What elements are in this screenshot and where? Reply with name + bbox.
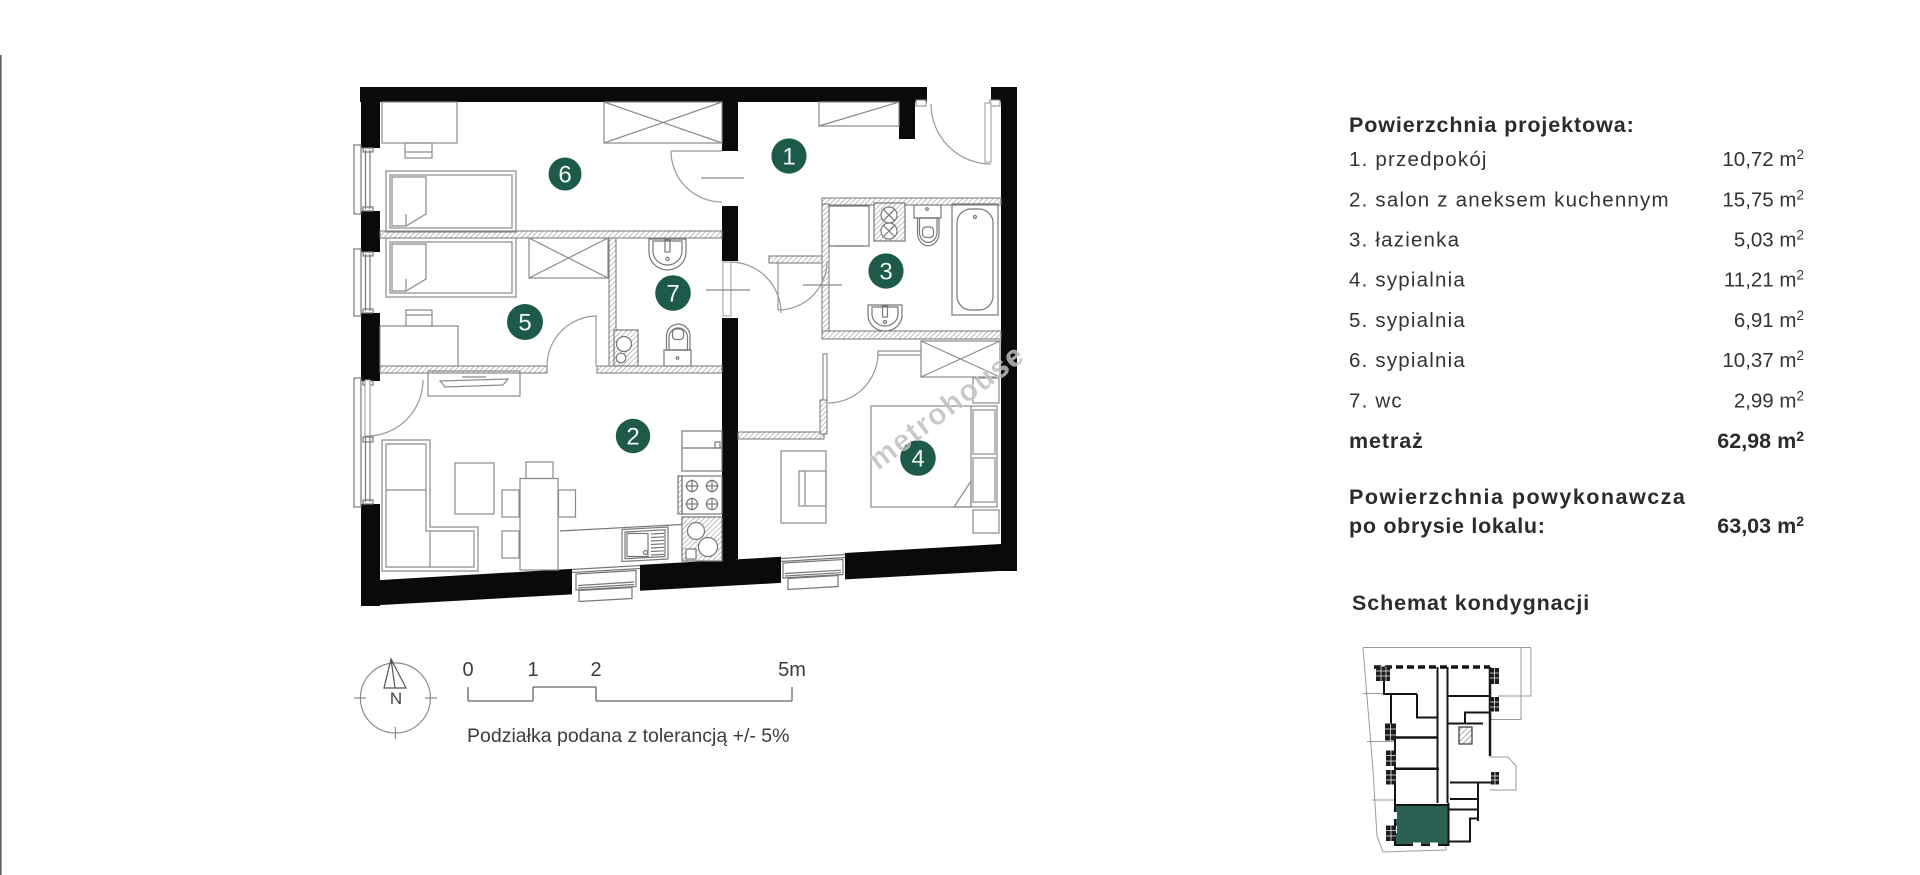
svg-text:15,75 m2: 15,75 m2 (1722, 188, 1804, 212)
svg-text:5: 5 (518, 310, 531, 337)
svg-text:10,37 m2: 10,37 m2 (1722, 348, 1804, 372)
svg-text:6,91 m2: 6,91 m2 (1734, 308, 1804, 332)
svg-text:N: N (390, 689, 402, 708)
svg-text:2. salon z aneksem kuchennym: 2. salon z aneksem kuchennym (1349, 189, 1670, 212)
svg-text:1. przedpokój: 1. przedpokój (1349, 148, 1488, 171)
svg-text:2: 2 (590, 659, 601, 681)
svg-text:11,21 m2: 11,21 m2 (1724, 268, 1804, 292)
svg-text:Schemat kondygnacji: Schemat kondygnacji (1352, 591, 1590, 615)
svg-text:po obrysie lokalu:: po obrysie lokalu: (1349, 514, 1546, 538)
svg-text:63,03 m2: 63,03 m2 (1717, 513, 1804, 538)
svg-text:3. łazienka: 3. łazienka (1349, 229, 1460, 252)
svg-text:5. sypialnia: 5. sypialnia (1349, 309, 1466, 332)
svg-text:3: 3 (879, 259, 892, 286)
svg-text:4. sypialnia: 4. sypialnia (1349, 269, 1466, 292)
svg-text:2,99 m2: 2,99 m2 (1734, 389, 1804, 413)
svg-text:0: 0 (462, 659, 473, 681)
svg-text:6: 6 (558, 162, 571, 189)
svg-text:5m: 5m (778, 659, 806, 681)
svg-text:Powierzchnia projektowa:: Powierzchnia projektowa: (1349, 113, 1635, 137)
svg-text:5,03 m2: 5,03 m2 (1734, 228, 1804, 252)
svg-text:1: 1 (782, 144, 795, 171)
svg-text:metraż: metraż (1349, 429, 1424, 453)
svg-text:1: 1 (527, 659, 538, 681)
svg-text:Powierzchnia powykonawcza: Powierzchnia powykonawcza (1349, 485, 1686, 509)
svg-text:62,98 m2: 62,98 m2 (1717, 428, 1804, 453)
svg-text:Podziałka podana z tolerancją: Podziałka podana z tolerancją +/- 5% (467, 725, 790, 747)
svg-text:10,72 m2: 10,72 m2 (1722, 147, 1804, 171)
svg-text:7: 7 (666, 281, 679, 308)
svg-text:2: 2 (626, 424, 639, 451)
svg-text:7. wc: 7. wc (1349, 390, 1403, 413)
svg-text:6. sypialnia: 6. sypialnia (1349, 349, 1466, 372)
